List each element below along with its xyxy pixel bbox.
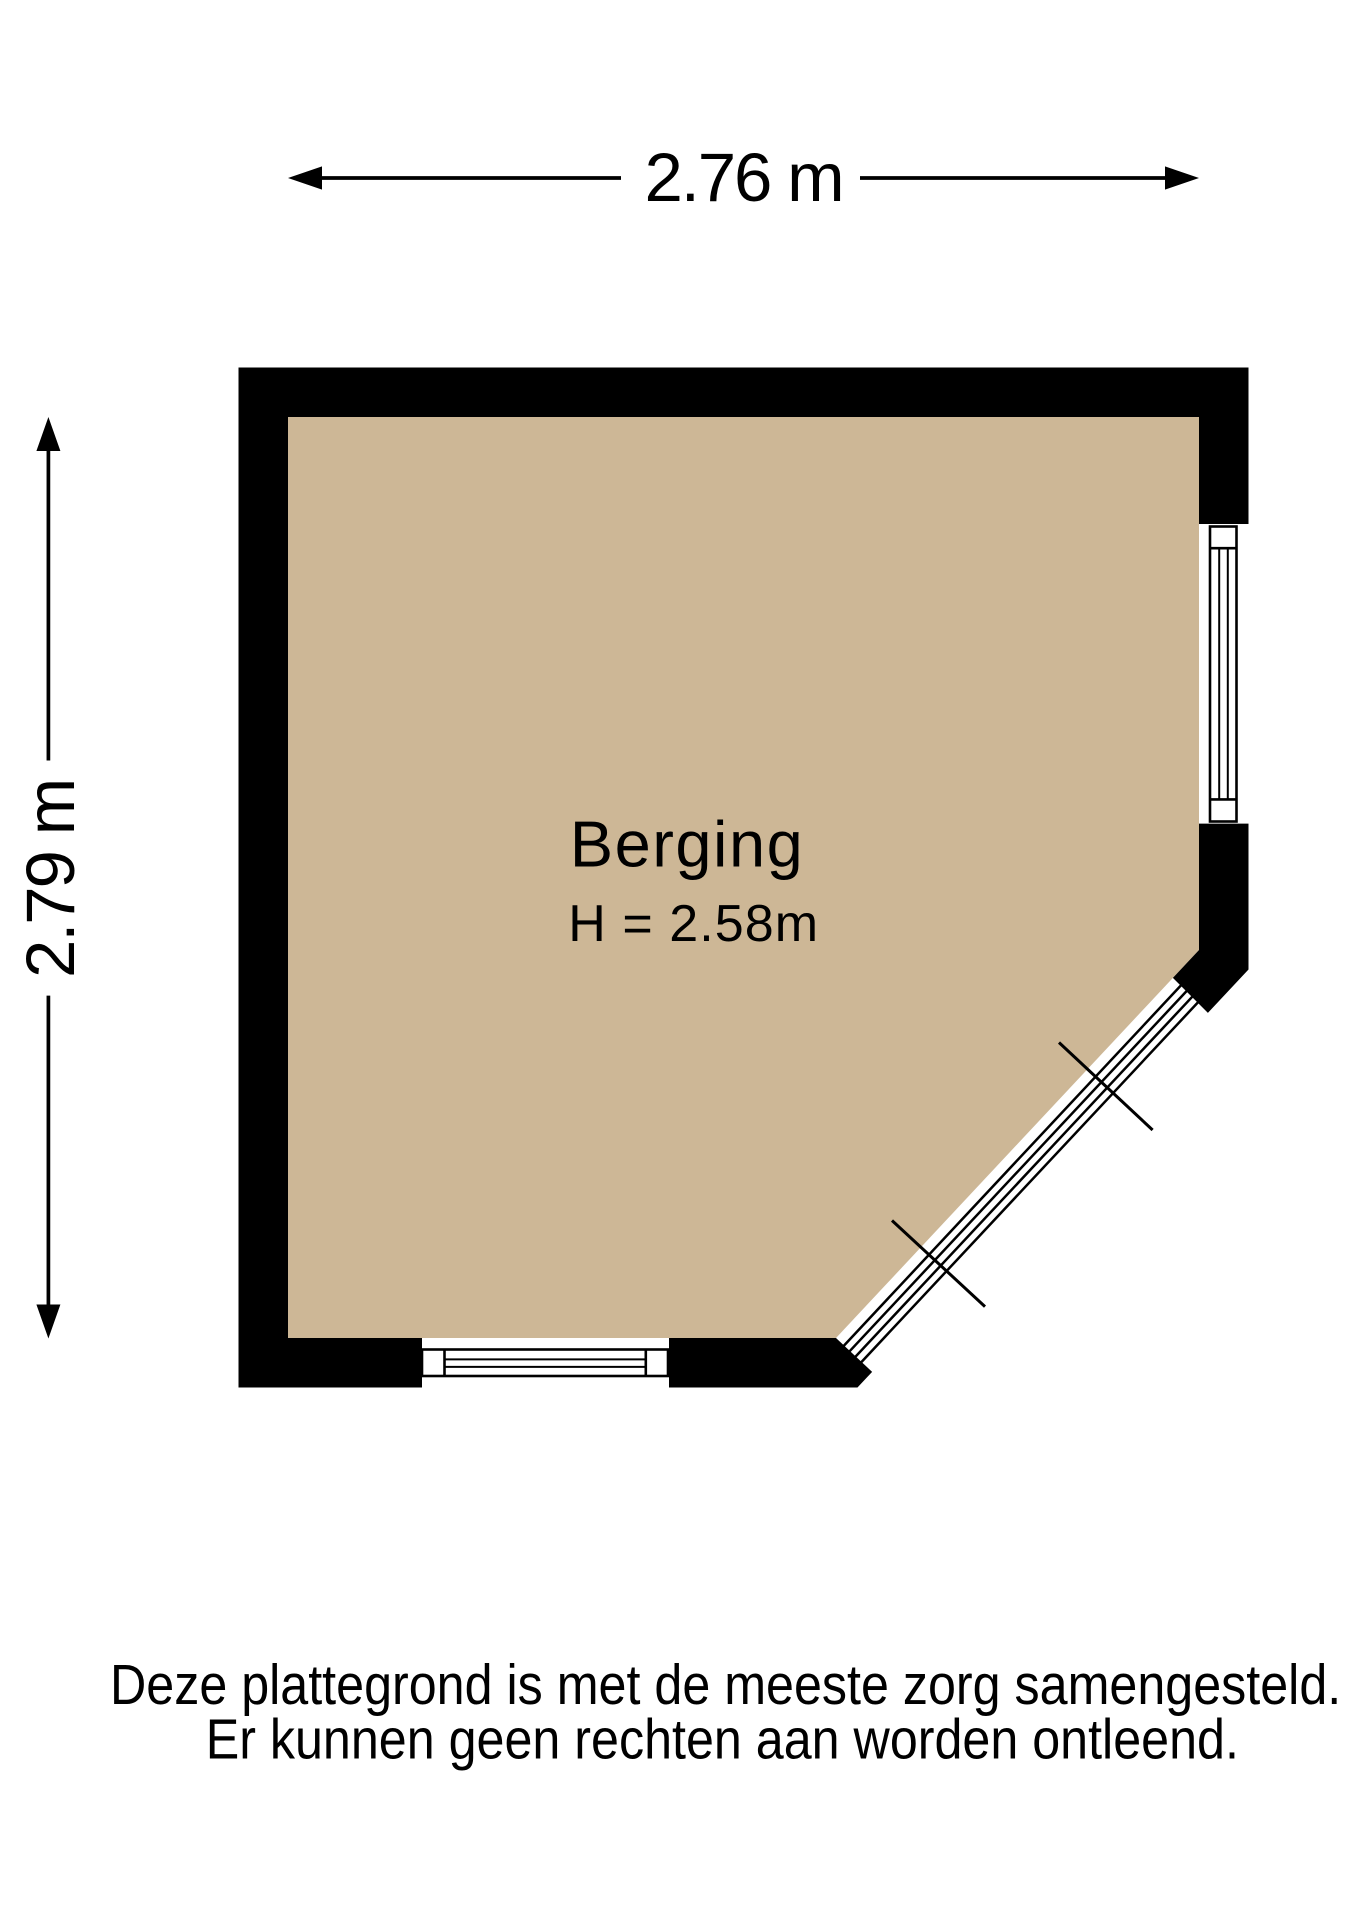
svg-text:2.76 m: 2.76 m xyxy=(644,139,842,216)
svg-text:Berging: Berging xyxy=(570,808,805,881)
svg-text:H = 2.58m: H = 2.58m xyxy=(568,895,819,953)
svg-text:2.79 m: 2.79 m xyxy=(12,780,89,978)
svg-text:Er kunnen geen rechten aan wor: Er kunnen geen rechten aan worden ontlee… xyxy=(206,1708,1239,1772)
